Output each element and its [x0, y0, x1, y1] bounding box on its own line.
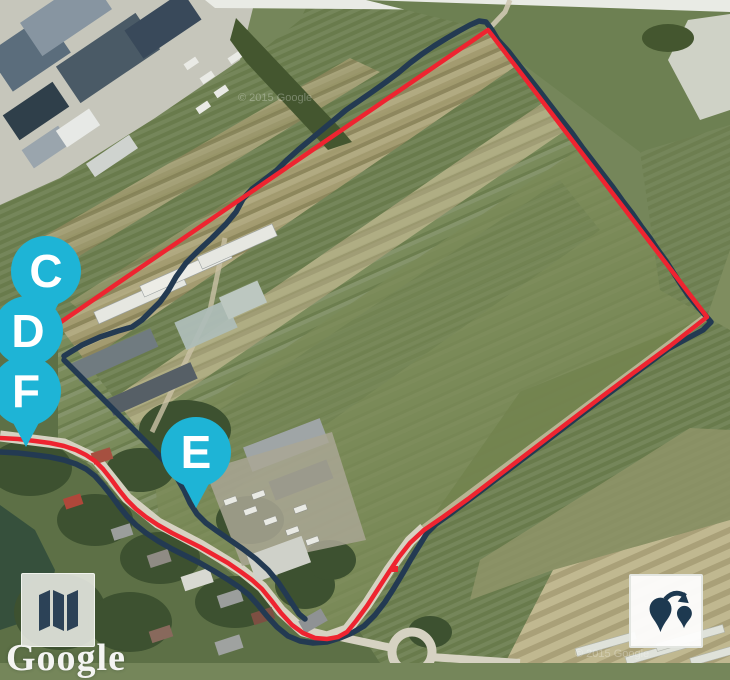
marker-label: C — [29, 245, 62, 297]
marker-label: F — [12, 365, 40, 417]
markers-button[interactable] — [629, 574, 703, 648]
marker-label: E — [181, 426, 212, 478]
folded-map-icon — [35, 587, 81, 633]
map-marker-E[interactable]: E — [161, 417, 231, 508]
marker-label: D — [11, 305, 44, 357]
gps-track-line — [64, 360, 305, 619]
map-canvas[interactable]: CDFE © 2015 Google © 2015 Google Google — [0, 0, 730, 663]
route-point-dot — [392, 566, 398, 572]
route-marker-overlay: CDFE — [0, 0, 730, 663]
map-pins-arrow-icon — [637, 582, 695, 640]
map-marker-F[interactable]: F — [0, 356, 61, 447]
map-type-button[interactable] — [21, 573, 95, 647]
gps-track-line — [0, 21, 711, 643]
